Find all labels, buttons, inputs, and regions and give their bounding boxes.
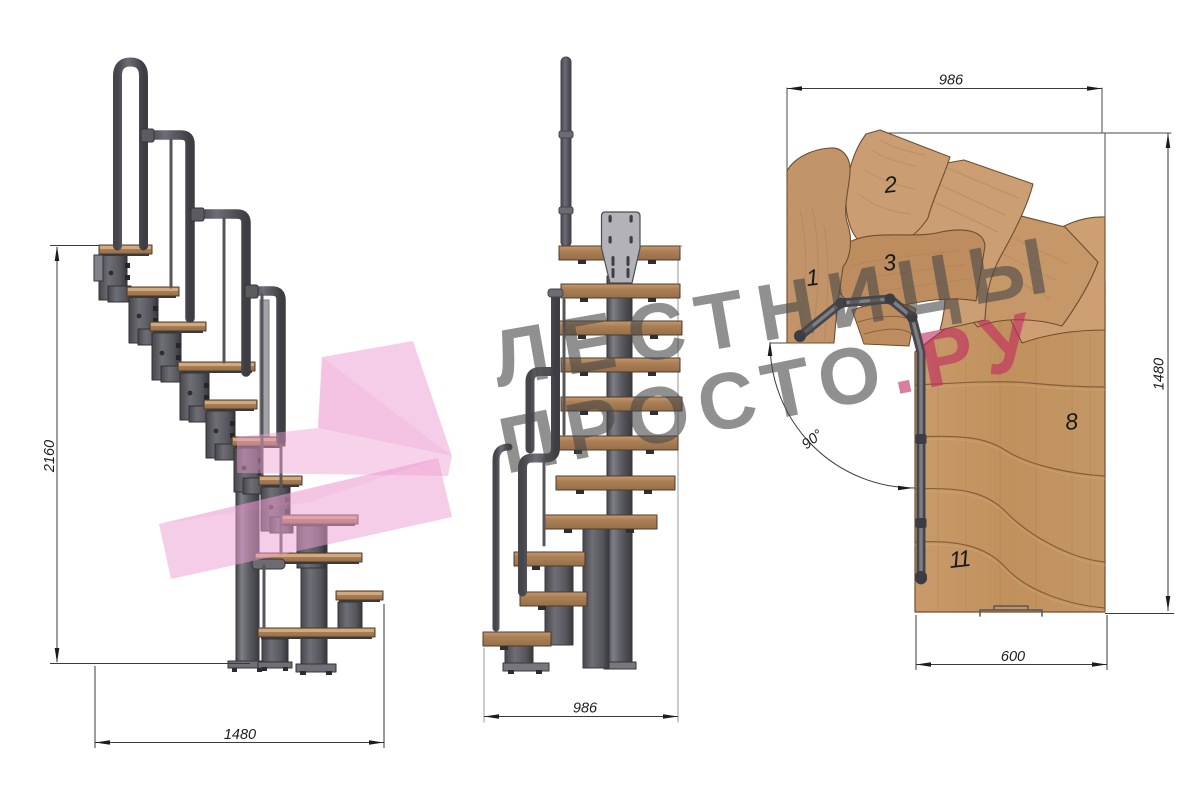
svg-text:2: 2 — [882, 171, 899, 198]
svg-text:600: 600 — [1001, 649, 1025, 665]
svg-text:2160: 2160 — [42, 440, 58, 473]
svg-text:1480: 1480 — [224, 727, 256, 743]
svg-text:986: 986 — [939, 73, 964, 89]
svg-text:1480: 1480 — [1152, 358, 1168, 390]
svg-text:11: 11 — [948, 545, 971, 573]
svg-text:986: 986 — [573, 701, 598, 717]
